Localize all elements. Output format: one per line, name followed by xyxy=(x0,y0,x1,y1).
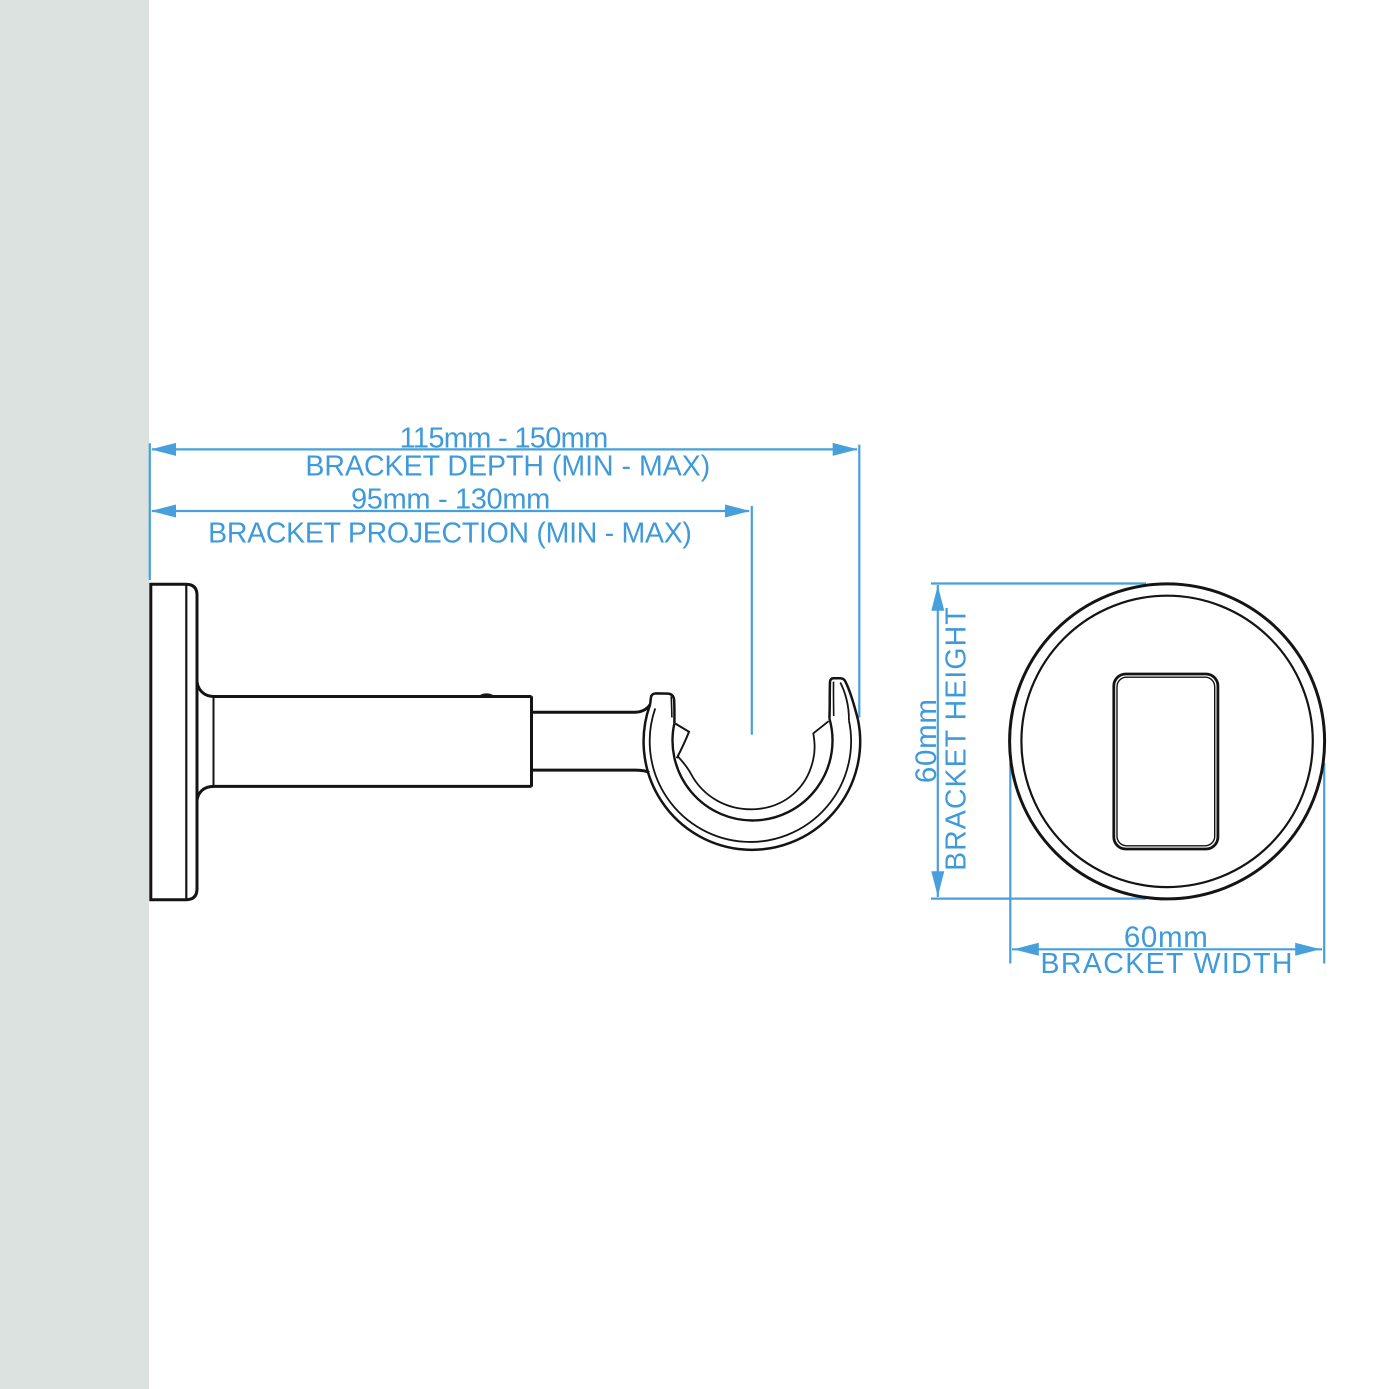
svg-text:BRACKET DEPTH (MIN - MAX): BRACKET DEPTH (MIN - MAX) xyxy=(305,451,710,483)
svg-text:BRACKET HEIGHT: BRACKET HEIGHT xyxy=(941,606,973,871)
svg-text:BRACKET PROJECTION (MIN - MAX): BRACKET PROJECTION (MIN - MAX) xyxy=(208,517,692,549)
svg-text:60mm: 60mm xyxy=(910,698,943,783)
svg-text:95mm - 130mm: 95mm - 130mm xyxy=(351,484,550,516)
svg-text:BRACKET WIDTH: BRACKET WIDTH xyxy=(1041,948,1294,980)
